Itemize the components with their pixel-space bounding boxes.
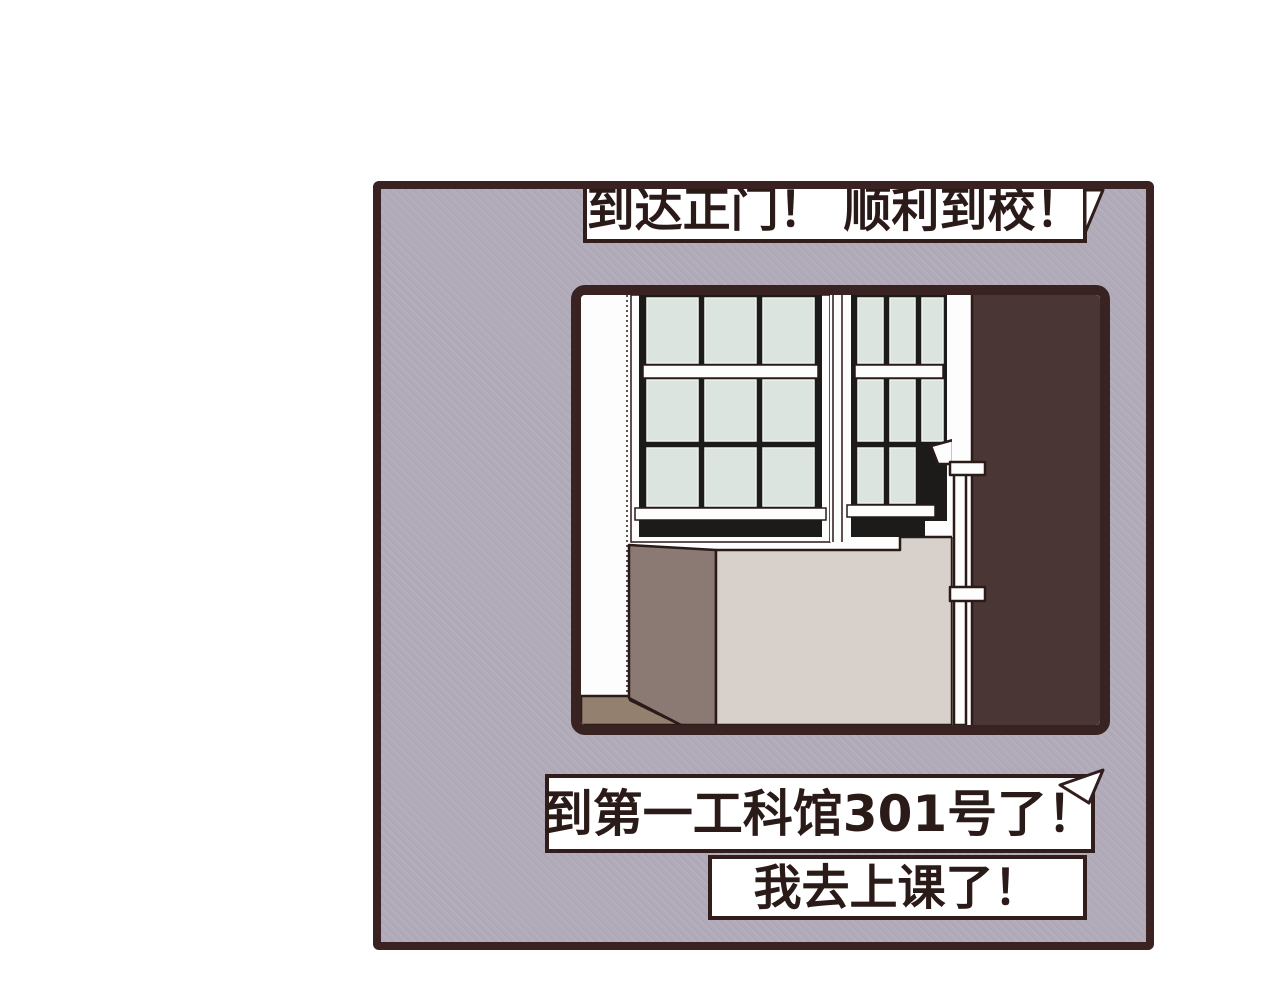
scene-frame (571, 285, 1110, 735)
speech-bubble-top: 到达正门！ 顺利到校！ (583, 181, 1087, 243)
speech-bubble-middle: 到第一工科馆301号了！ (545, 774, 1095, 853)
comic-panel: 到达正门！ 顺利到校！ 到第一工科馆301号了！ 我去上课了！ (373, 181, 1154, 950)
speech-bubble-top-text: 到达正门！ 顺利到校！ (587, 186, 1084, 234)
speech-bubble-bottom-text: 我去上课了！ (753, 864, 1041, 912)
window-mullion (830, 295, 845, 542)
speech-bubble-bottom: 我去上课了！ (708, 855, 1087, 920)
window-scene-illustration (581, 295, 1100, 725)
speech-bubble-middle-text: 到第一工科馆301号了！ (543, 789, 1097, 839)
right-window (847, 295, 953, 537)
brown-wall (973, 295, 1100, 725)
speech-bubble-middle-tail (1056, 765, 1110, 807)
speech-bubble-top-tail (1081, 189, 1107, 237)
building-box (629, 537, 952, 725)
left-window (631, 295, 830, 542)
